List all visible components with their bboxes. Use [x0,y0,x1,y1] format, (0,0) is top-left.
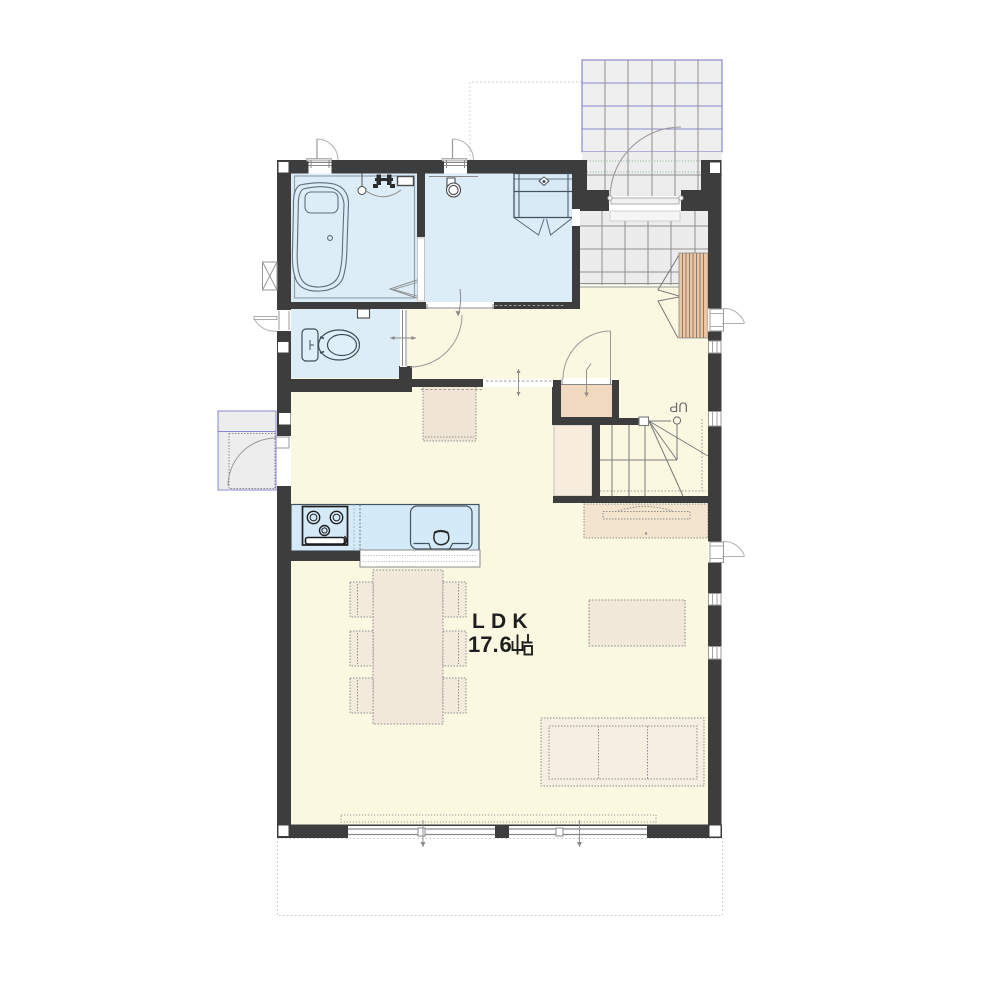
svg-text:LDK: LDK [472,610,534,633]
svg-text:17.: 17. [468,632,499,657]
svg-text:UP: UP [669,400,688,415]
svg-text:6: 6 [500,632,512,657]
